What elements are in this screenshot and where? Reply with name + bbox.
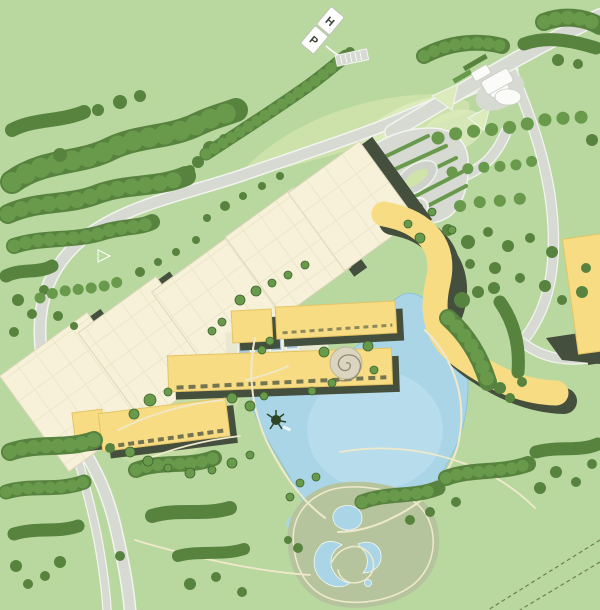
campus-bar-main xyxy=(167,348,399,400)
garden-pond-dot xyxy=(365,580,372,587)
garden-pond-bean xyxy=(333,506,362,530)
gatehouse-building-3 xyxy=(495,89,521,105)
campus-bar-north xyxy=(275,301,404,348)
site-plan-map: H P xyxy=(0,0,600,610)
